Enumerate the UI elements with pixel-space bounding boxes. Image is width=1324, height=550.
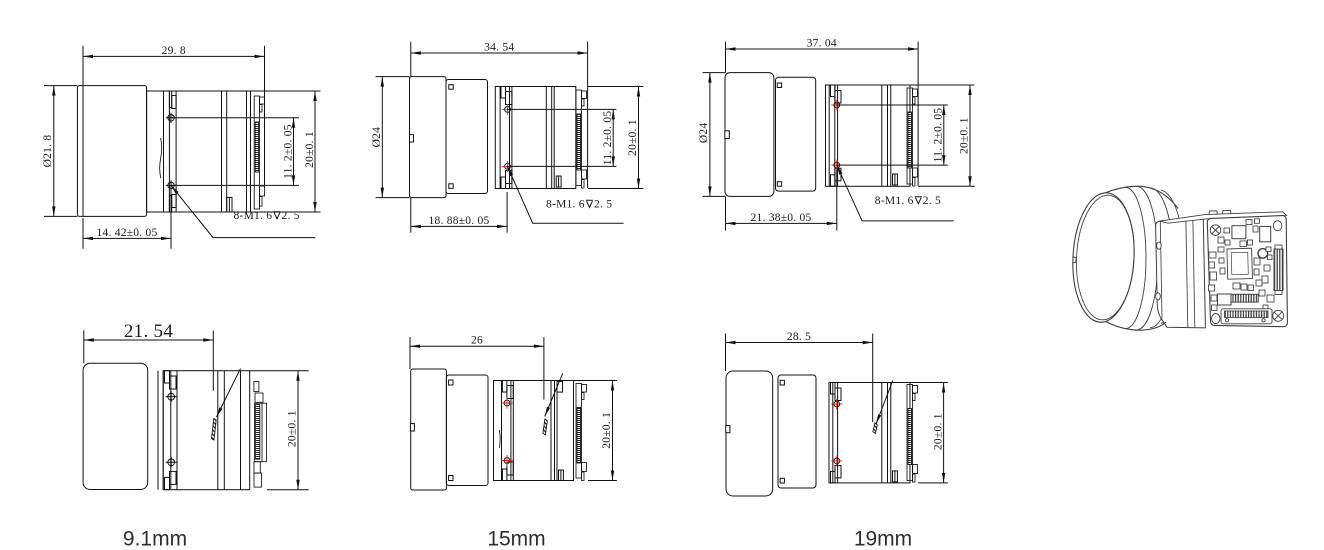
- svg-text:20±0. 1: 20±0. 1: [959, 117, 971, 154]
- svg-text:2. 5: 2. 5: [923, 195, 941, 207]
- svg-text:21. 54: 21. 54: [124, 321, 173, 342]
- svg-text:2. 5: 2. 5: [594, 199, 612, 211]
- svg-text:2. 5: 2. 5: [282, 210, 300, 222]
- svg-text:29. 8: 29. 8: [162, 45, 186, 57]
- svg-text:21. 38±0. 05: 21. 38±0. 05: [750, 212, 811, 224]
- svg-text:19mm: 19mm: [854, 528, 912, 550]
- svg-text:26: 26: [471, 335, 483, 347]
- svg-text:20±0. 1: 20±0. 1: [601, 412, 613, 449]
- svg-text:11. 2±0. 05: 11. 2±0. 05: [282, 124, 294, 179]
- svg-text:8-M1. 6: 8-M1. 6: [875, 195, 914, 207]
- svg-text:20±0. 1: 20±0. 1: [627, 119, 639, 156]
- svg-text:11. 2±0. 05: 11. 2±0. 05: [932, 108, 944, 163]
- svg-text:20±0. 1: 20±0. 1: [287, 410, 299, 447]
- svg-text:14. 42±0. 05: 14. 42±0. 05: [96, 227, 157, 239]
- svg-text:9.1mm: 9.1mm: [123, 528, 187, 550]
- svg-text:Ø21. 8: Ø21. 8: [42, 135, 54, 168]
- svg-text:20±0. 1: 20±0. 1: [932, 413, 944, 450]
- svg-text:11. 2±0. 05: 11. 2±0. 05: [602, 111, 614, 166]
- svg-text:8-M1. 6: 8-M1. 6: [234, 210, 273, 222]
- svg-text:20±0. 1: 20±0. 1: [304, 131, 316, 168]
- svg-text:Ø24: Ø24: [698, 123, 710, 144]
- svg-text:28. 5: 28. 5: [787, 331, 811, 343]
- svg-text:37. 04: 37. 04: [807, 37, 837, 49]
- svg-text:34. 54: 34. 54: [484, 41, 514, 53]
- svg-text:8-M1. 6: 8-M1. 6: [546, 199, 585, 211]
- svg-text:15mm: 15mm: [487, 528, 545, 550]
- svg-text:18. 88±0. 05: 18. 88±0. 05: [428, 215, 489, 227]
- svg-text:Ø24: Ø24: [371, 127, 383, 148]
